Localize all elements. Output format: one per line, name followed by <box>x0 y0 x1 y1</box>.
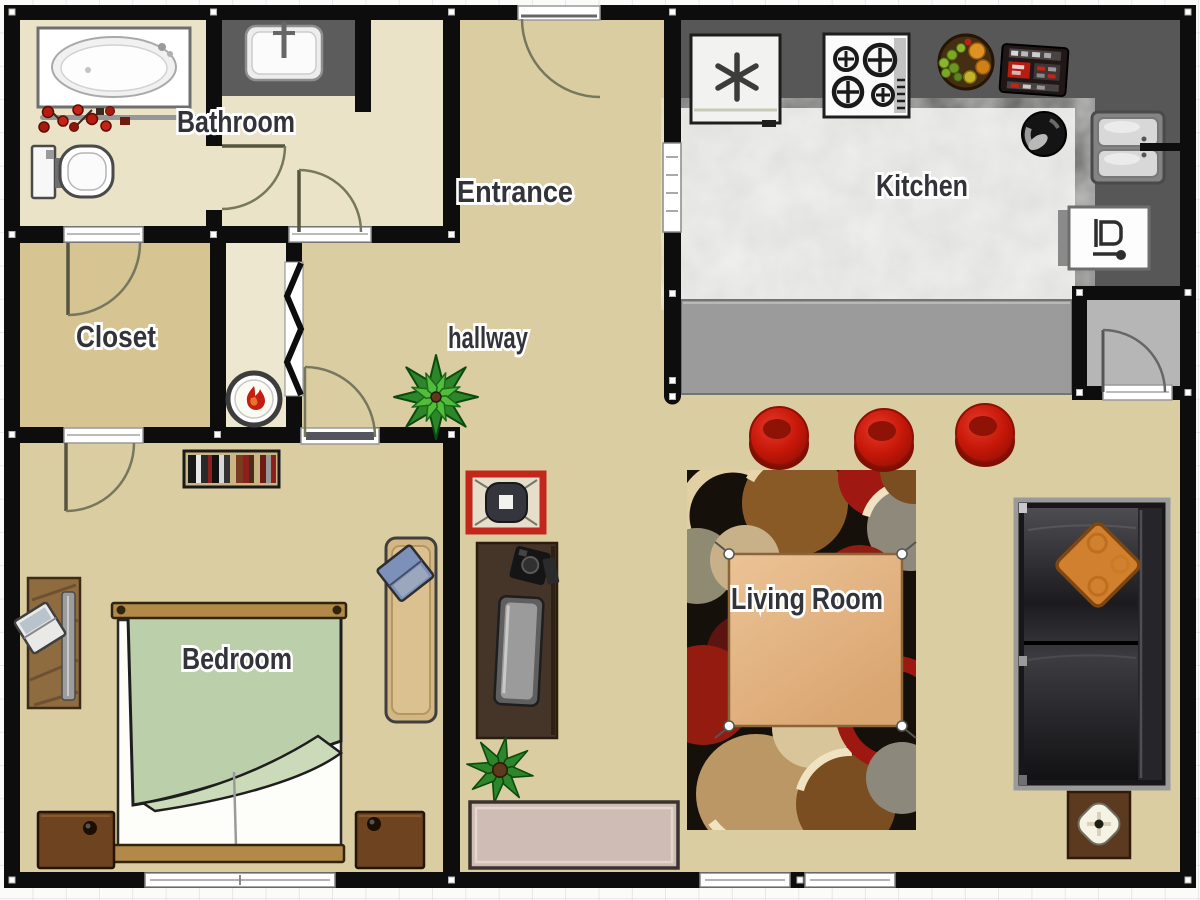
svg-text:hallway: hallway <box>448 320 529 355</box>
svg-text:Bedroom: Bedroom <box>182 641 292 676</box>
svg-text:Living Room: Living Room <box>731 581 883 616</box>
svg-text:Bathroom: Bathroom <box>177 104 295 139</box>
svg-text:Entrance: Entrance <box>457 174 573 209</box>
svg-text:Closet: Closet <box>76 319 156 354</box>
svg-text:Kitchen: Kitchen <box>876 168 968 203</box>
